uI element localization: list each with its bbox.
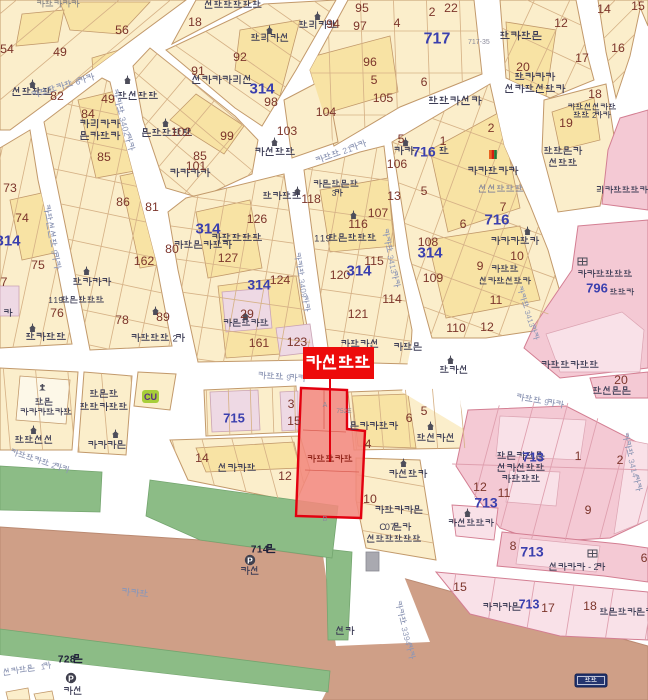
svg-text:107: 107 bbox=[368, 206, 389, 220]
svg-text:116: 116 bbox=[348, 217, 368, 231]
svg-text:99: 99 bbox=[220, 129, 234, 143]
svg-text:13: 13 bbox=[387, 189, 401, 203]
svg-text:9: 9 bbox=[326, 233, 331, 244]
svg-text:2: 2 bbox=[429, 5, 436, 19]
svg-text:49: 49 bbox=[53, 45, 67, 59]
svg-text:717-35: 717-35 bbox=[468, 39, 490, 46]
svg-text:18: 18 bbox=[583, 599, 597, 613]
svg-text:9: 9 bbox=[286, 372, 292, 382]
svg-text:54: 54 bbox=[0, 42, 14, 56]
svg-text:80: 80 bbox=[165, 242, 179, 256]
svg-text:85: 85 bbox=[97, 150, 111, 164]
svg-text:2: 2 bbox=[592, 111, 597, 120]
svg-text:95: 95 bbox=[355, 1, 369, 15]
svg-text:314: 314 bbox=[417, 245, 443, 262]
svg-text:752E: 752E bbox=[336, 408, 352, 415]
svg-text:12: 12 bbox=[554, 16, 568, 30]
svg-text:162: 162 bbox=[134, 254, 155, 268]
svg-text:6: 6 bbox=[641, 551, 648, 565]
svg-text:4: 4 bbox=[394, 16, 401, 30]
svg-text:105: 105 bbox=[373, 91, 394, 105]
svg-text:6: 6 bbox=[406, 411, 413, 425]
svg-text:49: 49 bbox=[101, 92, 115, 106]
svg-text:6: 6 bbox=[421, 75, 428, 89]
svg-text:11: 11 bbox=[490, 293, 503, 307]
svg-text:9: 9 bbox=[585, 503, 592, 517]
svg-text:1: 1 bbox=[440, 134, 447, 148]
svg-text:2: 2 bbox=[594, 562, 599, 572]
svg-text:126: 126 bbox=[247, 212, 268, 226]
svg-text:4: 4 bbox=[365, 437, 372, 451]
svg-text:101: 101 bbox=[186, 159, 207, 173]
svg-text:19: 19 bbox=[559, 116, 573, 130]
svg-text:18: 18 bbox=[588, 87, 602, 101]
svg-text:118: 118 bbox=[301, 192, 321, 206]
svg-text:16: 16 bbox=[611, 41, 625, 55]
svg-text:20: 20 bbox=[614, 373, 628, 387]
svg-text:A: A bbox=[323, 402, 328, 409]
svg-text:91: 91 bbox=[191, 64, 205, 78]
svg-text:10: 10 bbox=[510, 249, 524, 263]
svg-text:713: 713 bbox=[474, 495, 498, 511]
svg-text:17: 17 bbox=[541, 601, 555, 615]
svg-text:104: 104 bbox=[316, 105, 337, 119]
svg-text:103: 103 bbox=[277, 124, 298, 138]
svg-text:5: 5 bbox=[421, 404, 428, 418]
svg-text:3: 3 bbox=[332, 188, 337, 198]
svg-text:78: 78 bbox=[115, 313, 129, 327]
svg-text:314: 314 bbox=[0, 233, 21, 250]
svg-text:121: 121 bbox=[348, 307, 369, 321]
svg-text:12: 12 bbox=[473, 480, 487, 494]
svg-text:2: 2 bbox=[617, 453, 624, 467]
svg-text:314: 314 bbox=[247, 277, 271, 293]
svg-text:5: 5 bbox=[421, 184, 428, 198]
svg-text:7: 7 bbox=[1, 275, 8, 289]
svg-text:314: 314 bbox=[195, 221, 221, 238]
svg-text:713: 713 bbox=[522, 450, 544, 465]
svg-text:713: 713 bbox=[519, 598, 540, 612]
svg-text:17: 17 bbox=[575, 51, 589, 65]
svg-text:73: 73 bbox=[3, 181, 17, 195]
svg-text:109: 109 bbox=[423, 271, 444, 285]
svg-text:14: 14 bbox=[195, 451, 209, 465]
svg-text:12: 12 bbox=[480, 320, 494, 334]
svg-text:4: 4 bbox=[263, 545, 269, 556]
svg-text:5: 5 bbox=[398, 132, 405, 146]
svg-text:114: 114 bbox=[382, 292, 402, 306]
svg-text:11: 11 bbox=[498, 486, 511, 500]
svg-text:96: 96 bbox=[363, 55, 377, 69]
svg-text:15: 15 bbox=[287, 414, 301, 428]
svg-text:161: 161 bbox=[249, 336, 270, 350]
svg-text:84: 84 bbox=[81, 107, 95, 121]
svg-text:14: 14 bbox=[597, 2, 611, 16]
svg-text:716: 716 bbox=[484, 212, 509, 229]
svg-text:5: 5 bbox=[371, 73, 378, 87]
svg-text:127: 127 bbox=[218, 251, 239, 265]
svg-text:314: 314 bbox=[346, 263, 372, 280]
svg-text:B: B bbox=[323, 516, 328, 523]
svg-text:796: 796 bbox=[586, 281, 608, 296]
svg-text:716: 716 bbox=[412, 144, 436, 160]
svg-text:15: 15 bbox=[631, 0, 645, 13]
svg-text:15: 15 bbox=[453, 580, 467, 594]
svg-text:124: 124 bbox=[270, 273, 291, 287]
svg-text:0: 0 bbox=[385, 522, 390, 532]
svg-text:56: 56 bbox=[115, 23, 129, 37]
svg-text:3: 3 bbox=[288, 397, 295, 411]
svg-text:-: - bbox=[588, 562, 591, 572]
svg-text:715: 715 bbox=[223, 411, 245, 426]
svg-text:92: 92 bbox=[233, 50, 247, 64]
svg-text:9: 9 bbox=[477, 259, 484, 273]
svg-text:1: 1 bbox=[320, 233, 325, 244]
svg-text:18: 18 bbox=[188, 15, 202, 29]
svg-text:717: 717 bbox=[424, 31, 451, 48]
svg-text:102: 102 bbox=[171, 125, 192, 139]
svg-text:713: 713 bbox=[520, 544, 544, 560]
svg-text:2: 2 bbox=[488, 121, 495, 135]
svg-text:74: 74 bbox=[15, 211, 29, 225]
svg-text:1: 1 bbox=[314, 233, 319, 244]
svg-text:2: 2 bbox=[173, 333, 178, 344]
svg-text:29: 29 bbox=[240, 307, 254, 321]
svg-text:81: 81 bbox=[145, 200, 159, 214]
svg-text:75: 75 bbox=[31, 258, 45, 272]
svg-text:123: 123 bbox=[287, 335, 308, 349]
svg-text:82: 82 bbox=[50, 89, 64, 103]
svg-text:20: 20 bbox=[516, 60, 530, 74]
svg-text:6: 6 bbox=[460, 217, 467, 231]
svg-text:94: 94 bbox=[326, 17, 340, 31]
svg-text:106: 106 bbox=[387, 157, 408, 171]
svg-text:314: 314 bbox=[249, 81, 275, 98]
svg-text:110: 110 bbox=[446, 321, 466, 335]
svg-text:97: 97 bbox=[353, 19, 367, 33]
svg-text:10: 10 bbox=[363, 492, 377, 506]
svg-text:86: 86 bbox=[116, 195, 130, 209]
svg-text:7: 7 bbox=[390, 522, 395, 532]
svg-text:12: 12 bbox=[278, 469, 292, 483]
svg-text:8: 8 bbox=[510, 539, 517, 553]
svg-text:8: 8 bbox=[70, 655, 76, 666]
svg-text:1: 1 bbox=[575, 449, 582, 463]
svg-text:89: 89 bbox=[156, 310, 170, 324]
svg-text:76: 76 bbox=[50, 306, 64, 320]
svg-text:22: 22 bbox=[444, 1, 458, 15]
svg-text:9: 9 bbox=[58, 295, 63, 305]
